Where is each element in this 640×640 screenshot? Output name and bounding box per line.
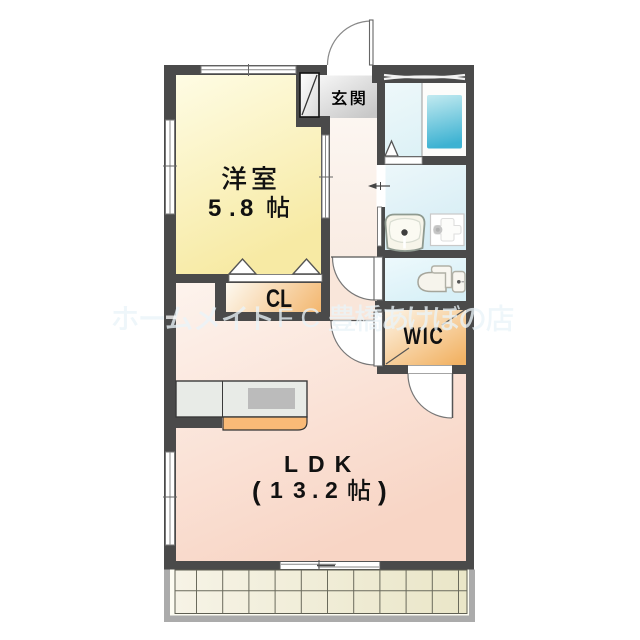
svg-text:8: 8 [240, 195, 253, 222]
svg-text:1: 1 [270, 477, 283, 503]
svg-text:): ) [378, 476, 387, 506]
svg-text:2: 2 [325, 477, 338, 503]
svg-text:FC: FC [277, 303, 327, 333]
svg-text:.: . [229, 195, 236, 222]
svg-text:.: . [312, 477, 318, 503]
svg-text:5: 5 [208, 195, 221, 222]
svg-text:(: ( [252, 476, 261, 506]
svg-text:3: 3 [293, 477, 306, 503]
svg-text:LDK: LDK [284, 451, 361, 477]
